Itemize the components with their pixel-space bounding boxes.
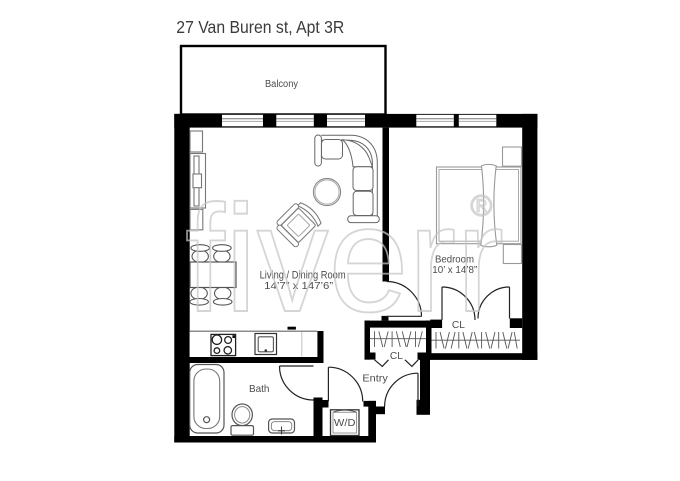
svg-text:Balcony: Balcony [265,79,298,90]
svg-text:fiverr: fiverr [185,174,504,344]
svg-text:Entry: Entry [362,374,388,385]
svg-text:27 Van Buren st, Apt 3R: 27 Van Buren st, Apt 3R [176,17,344,37]
svg-text:CL: CL [390,351,403,362]
svg-text:Bath: Bath [249,384,270,395]
svg-text:®: ® [471,190,493,223]
svg-text:W/D: W/D [334,418,356,429]
